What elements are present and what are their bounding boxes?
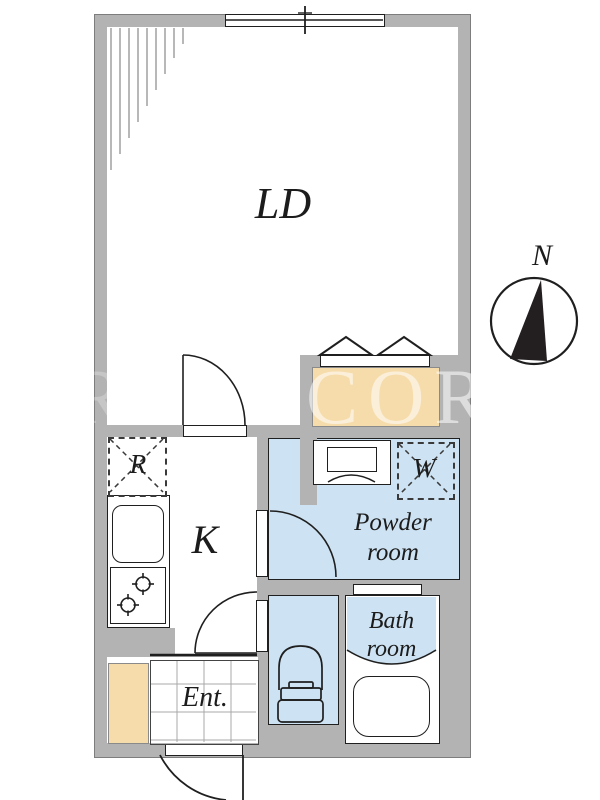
compass <box>491 278 577 364</box>
door-entrance <box>160 755 243 800</box>
door-ld <box>183 355 245 425</box>
label-powder: Powder room <box>328 508 458 568</box>
label-powder-line2: room <box>328 538 458 568</box>
label-bath-line1: Bath <box>345 607 438 635</box>
label-north: N <box>520 240 564 272</box>
burner-icons <box>117 573 154 616</box>
hatch-lines <box>111 28 183 170</box>
label-ld: LD <box>228 180 338 228</box>
label-ent: Ent. <box>160 683 250 713</box>
label-w: W <box>408 454 440 483</box>
label-bath: Bath room <box>345 607 438 663</box>
label-r: R <box>122 450 154 479</box>
door-hall <box>195 592 257 653</box>
washbasin-curve <box>328 475 375 482</box>
floor-plan: COR R LD K R W Powder room Bath room Ent… <box>0 0 600 800</box>
watermark: COR <box>306 352 496 442</box>
label-powder-line1: Powder <box>328 508 458 538</box>
door-powder <box>270 511 336 577</box>
window-detail <box>226 6 383 34</box>
toilet-symbol <box>278 646 323 722</box>
watermark-partial: R <box>72 352 134 442</box>
label-bath-line2: room <box>345 635 438 663</box>
label-k: K <box>170 518 240 561</box>
